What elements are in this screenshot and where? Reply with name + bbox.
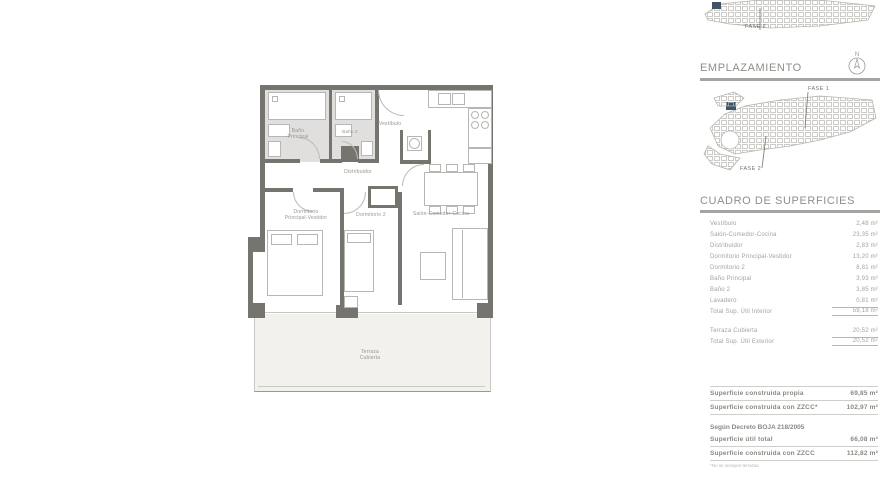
terrace-railing-line <box>258 386 485 387</box>
table-row: Salón-Comedor-Cocina 23,35 m² <box>710 229 878 240</box>
cuadro-superficies-title: CUADRO DE SUPERFICIES <box>700 195 855 207</box>
wall <box>428 130 431 164</box>
room-label-bano-2: Baño 2 <box>342 129 357 135</box>
room-label-dormitorio-principal: Dormitorio Principal-Vestidor <box>285 209 328 221</box>
room-label-salon: Salón-Comedor-Cocina <box>413 211 469 217</box>
hob-burner-icon <box>471 111 479 119</box>
wall <box>265 159 300 163</box>
toilet-symbol <box>361 141 373 156</box>
washing-machine-drum-icon <box>409 138 420 149</box>
built-row: Superficie construida con ZZCC* 102,97 m… <box>710 401 878 415</box>
site-map-top: FASE 2 <box>700 0 880 42</box>
drain-icon <box>339 96 345 102</box>
kitchen-appliance-symbol <box>468 148 492 164</box>
door-arc <box>378 90 404 116</box>
dining-table-symbol <box>424 172 478 206</box>
hob-burner-icon <box>481 111 489 119</box>
hob-burner-icon <box>481 121 489 129</box>
room-label-vestibulo: Vestíbulo <box>379 121 401 127</box>
door-arc <box>344 192 366 214</box>
decree-block: Según Decreto BOJA 218/2005 Superficie ú… <box>710 421 878 468</box>
room-label-dormitorio-2: Dormitorio 2 <box>356 212 386 218</box>
table-row: Lavadero 0,81 m² <box>710 295 878 306</box>
floor-plan: Baño Principal Baño 2 Vestíbulo Distribu… <box>0 0 700 504</box>
wall <box>398 192 402 305</box>
built-surfaces-block: Superficie construida propia 69,85 m² Su… <box>710 386 878 415</box>
built-row: Superficie construida propia 69,85 m² <box>710 387 878 401</box>
site-buildings <box>705 0 875 28</box>
wall <box>320 159 342 163</box>
fase1-label: FASE 1 <box>808 86 829 92</box>
pillow-symbol <box>297 234 318 245</box>
room-label-bano-principal: Baño Principal <box>288 128 309 140</box>
table-row: Baño 2 3,85 m² <box>710 284 878 295</box>
compass-n-letter: N <box>855 52 859 58</box>
wall <box>265 188 293 192</box>
wardrobe-symbol <box>368 186 398 208</box>
toilet-symbol <box>268 141 281 157</box>
decree-row: Superficie útil total 66,08 m² <box>710 433 878 447</box>
terrace-top-line <box>254 312 489 313</box>
decree-row: Superficie construida con ZZCC 112,82 m² <box>710 447 878 461</box>
sofa-symbol <box>452 228 488 300</box>
sidebar: FASE 2 EMPLAZAMIENTO N FASE 1 FASE 2 CUA… <box>697 0 882 504</box>
table-row: Baño Principal 3,93 m² <box>710 273 878 284</box>
room-label-distribuidor: Distribuidor <box>344 169 372 175</box>
total-exterior-row: Total Sup. Útil Exterior 20,52 m² <box>710 336 878 347</box>
door-arc <box>402 164 424 186</box>
table-row: Dormitorio Principal-Vestidor 13,20 m² <box>710 251 878 262</box>
table-row: Vestíbulo 2,48 m² <box>710 218 878 229</box>
drain-icon <box>272 96 278 102</box>
surfaces-table: Vestíbulo 2,48 m² Salón-Comedor-Cocina 2… <box>710 218 878 317</box>
fase2-top-label: FASE 2 <box>745 24 766 30</box>
nightstand-symbol <box>344 296 358 308</box>
chair-symbol <box>446 164 458 172</box>
fase2-label: FASE 2 <box>740 166 761 172</box>
emplazamiento-title: EMPLAZAMIENTO <box>700 62 802 74</box>
wall <box>477 303 493 318</box>
section-rule <box>700 78 880 81</box>
wall <box>248 303 265 318</box>
highlighted-unit <box>712 2 721 9</box>
armchair-symbol <box>420 252 446 280</box>
decree-title: Según Decreto BOJA 218/2005 <box>710 421 878 433</box>
compass-icon: N <box>845 48 869 78</box>
table-row: Terraza Cubierta 20,52 m² <box>710 325 878 336</box>
chair-symbol <box>429 164 441 172</box>
wall <box>329 88 332 162</box>
chair-symbol <box>463 164 475 172</box>
wall <box>358 159 379 163</box>
pillow-symbol <box>347 233 371 243</box>
section-rule <box>700 210 880 213</box>
pillow-symbol <box>271 234 292 245</box>
hob-burner-icon <box>471 121 479 129</box>
footnote: *No se incluyen terrazas <box>710 463 878 468</box>
kitchen-sink-icon <box>438 93 451 105</box>
room-label-terraza: Terraza Cubierta <box>360 349 381 361</box>
wall <box>260 85 265 247</box>
kitchen-sink-icon <box>452 93 465 105</box>
wall <box>400 130 403 164</box>
site-map-emplazamiento: FASE 1 FASE 2 <box>700 84 880 179</box>
table-row: Dormitorio 2 8,81 m² <box>710 262 878 273</box>
wall <box>400 160 431 164</box>
exterior-surfaces-table: Terraza Cubierta 20,52 m² Total Sup. Úti… <box>710 325 878 347</box>
table-row: Distribuidor 2,83 m² <box>710 240 878 251</box>
total-interior-row: Total Sup. Útil Interior 59,18 m² <box>710 306 878 317</box>
sofa-cushion-line <box>462 230 463 298</box>
